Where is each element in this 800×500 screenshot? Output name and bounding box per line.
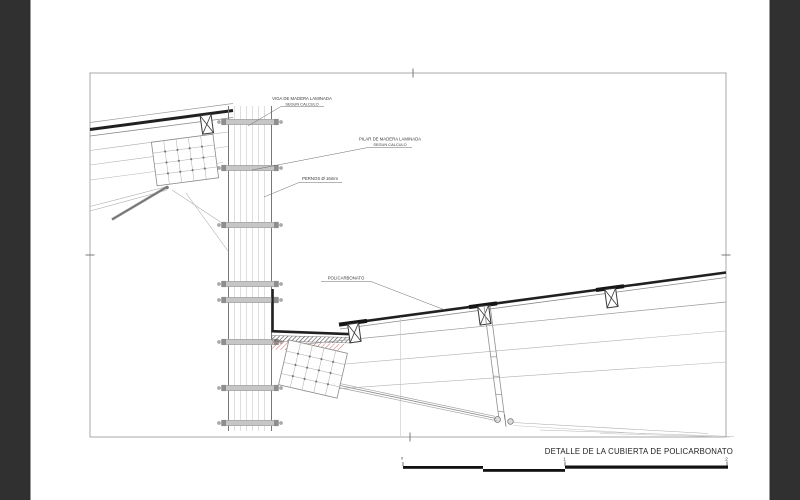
hanger-member bbox=[484, 305, 708, 434]
drawing-title: DETALLE DE LA CUBIERTA DE POLICARBONATO bbox=[545, 447, 733, 456]
scale-bar: 0 1 2 bbox=[401, 456, 728, 472]
scale-label-1: 1 bbox=[563, 457, 566, 462]
column-band bbox=[217, 385, 283, 391]
annotation-bolts-line1: PERNOS Ø 16mm bbox=[302, 176, 338, 181]
glulam-column bbox=[229, 106, 272, 431]
annotation-bolts: PERNOS Ø 16mm bbox=[264, 176, 342, 197]
column-band bbox=[217, 119, 283, 125]
right-tie-rod bbox=[332, 382, 497, 421]
scale-label-0: 0 bbox=[401, 456, 404, 461]
bolted-plate bbox=[151, 134, 218, 186]
annotation-column: PILAR DE MADERA LAMINADA SEGUN CALCULO bbox=[252, 137, 421, 171]
viewer-stage: VIGA DE MADERA LAMINADA SEGUN CALCULO PI… bbox=[0, 0, 800, 500]
scale-label-2: 2 bbox=[725, 457, 728, 462]
annotation-polycarbonate: POLICARBONATO bbox=[321, 276, 445, 311]
purlin-sections bbox=[200, 114, 618, 342]
annotation-beam-line1: VIGA DE MADERA LAMINADA bbox=[272, 96, 332, 101]
bolted-connection-plates bbox=[151, 134, 347, 398]
left-tie-rod bbox=[90, 186, 228, 251]
column-band bbox=[217, 420, 283, 426]
annotation-column-line1: PILAR DE MADERA LAMINADA bbox=[359, 137, 421, 142]
gutter-detail bbox=[271, 289, 351, 352]
column-band bbox=[217, 222, 283, 228]
purlin-section bbox=[200, 114, 213, 134]
purlin-section bbox=[348, 323, 361, 343]
column-connector-bands bbox=[217, 119, 283, 426]
purlin-section bbox=[605, 288, 618, 308]
annotation-column-line2: SEGUN CALCULO bbox=[373, 142, 406, 147]
roof-detail-drawing: VIGA DE MADERA LAMINADA SEGUN CALCULO PI… bbox=[0, 0, 800, 500]
annotation-polycarbonate-line1: POLICARBONATO bbox=[328, 276, 365, 281]
right-roof-polycarbonate bbox=[296, 273, 734, 438]
annotation-beam-line2: SEGUN CALCULO bbox=[285, 101, 318, 106]
column-band bbox=[217, 281, 283, 287]
